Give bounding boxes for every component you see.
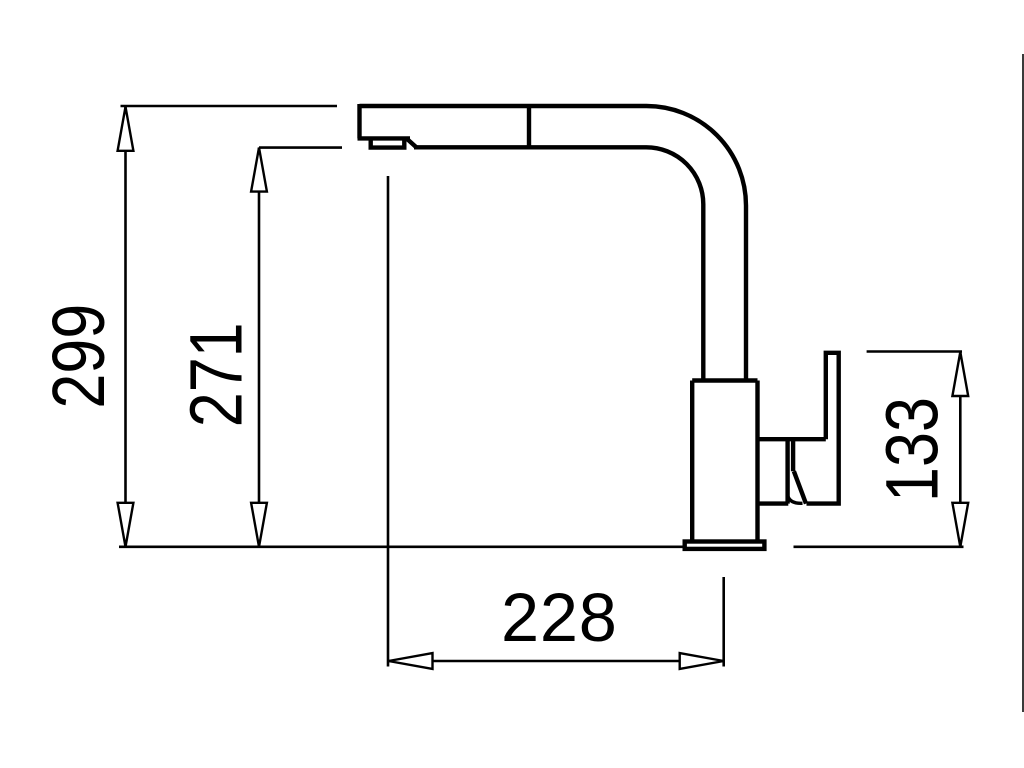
svg-text:271: 271 [174, 322, 257, 427]
svg-text:133: 133 [871, 397, 954, 502]
svg-text:299: 299 [37, 304, 120, 409]
svg-text:228: 228 [501, 579, 618, 656]
